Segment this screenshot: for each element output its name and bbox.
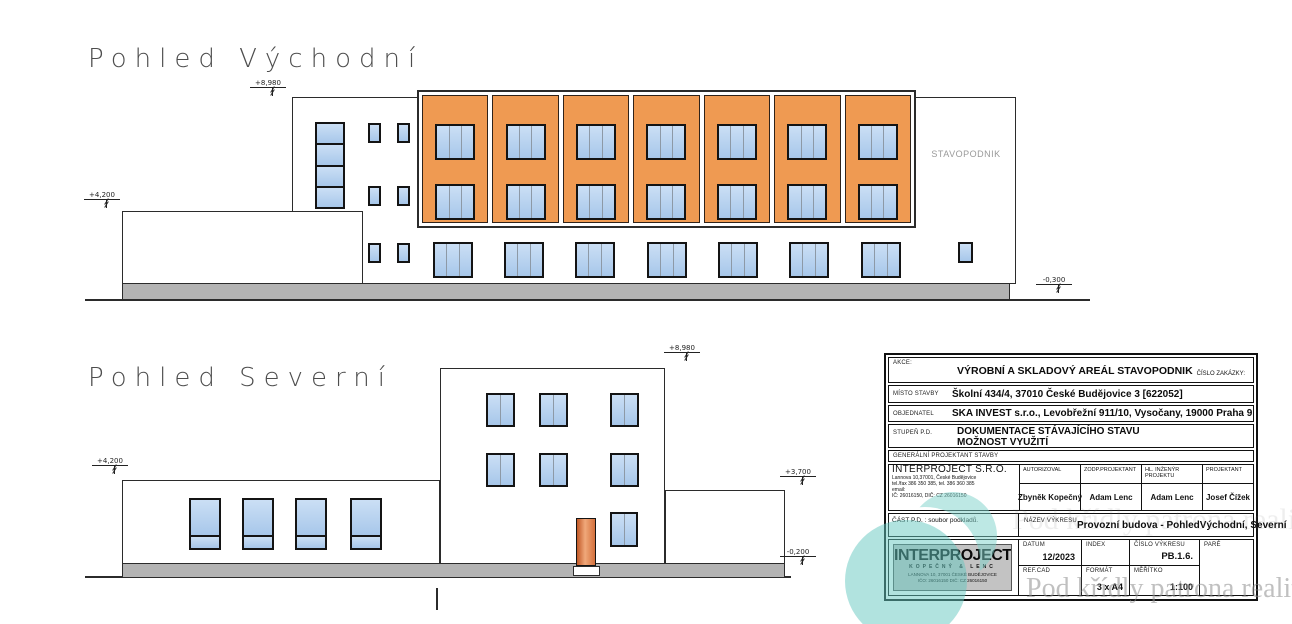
annex-window bbox=[189, 498, 221, 550]
window-pane bbox=[625, 395, 637, 425]
watermark-ghost-text: Pod křídly patrona realit bbox=[1012, 503, 1292, 537]
window-pane bbox=[541, 455, 553, 485]
window-pane bbox=[554, 395, 566, 425]
level-tick-icon bbox=[272, 88, 273, 96]
cislo-vykresu-value: PB.1.6. bbox=[1161, 551, 1193, 562]
north-upper-window bbox=[539, 393, 568, 427]
logo-address: IČO: 26016150 DIČ: CZ 26016150 bbox=[894, 578, 1011, 584]
akce-value: VÝROBNÍ A SKLADOVÝ AREÁL STAVOPODNIK bbox=[957, 365, 1193, 377]
level-marker-annex-right: +3,700 bbox=[780, 468, 816, 477]
projektant-label: PROJEKTANT bbox=[1203, 465, 1253, 484]
zodp-projektant-label: ZODP.PROJEKTANT bbox=[1081, 465, 1141, 484]
index-label: INDEX bbox=[1086, 542, 1105, 548]
firm-address-line: IČ: 26016150, DIČ: CZ 26016150 bbox=[892, 493, 1016, 499]
north-upper-window bbox=[539, 453, 568, 487]
level-marker-annex-left: +4,200 bbox=[92, 457, 128, 466]
annex-window bbox=[295, 498, 327, 550]
index-cell: INDEX bbox=[1081, 540, 1129, 566]
level-value: -0,300 bbox=[1036, 276, 1072, 285]
window-pane bbox=[554, 455, 566, 485]
stupen-pd-label: STUPEŇ P.D. bbox=[893, 430, 932, 436]
level-value: +8,980 bbox=[250, 79, 286, 88]
stupen-pd-value-2: MOŽNOST VYUŽITÍ bbox=[957, 437, 1048, 448]
level-tick-icon bbox=[802, 477, 803, 485]
gen-projektant-label: GENERÁLNÍ PROJEKTANT STAVBY bbox=[893, 453, 998, 459]
window-pane bbox=[352, 500, 380, 535]
level-tick-icon bbox=[1058, 285, 1059, 293]
title-block-row-akce: AKCE: VÝROBNÍ A SKLADOVÝ AREÁL STAVOPODN… bbox=[888, 357, 1254, 383]
window-pane bbox=[541, 395, 553, 425]
north-upper-window bbox=[610, 393, 639, 427]
firm-name: INTERPROJECT S.R.O. bbox=[892, 467, 1016, 473]
level-tick-icon bbox=[114, 466, 115, 474]
window-pane bbox=[191, 500, 219, 535]
window-pane bbox=[625, 455, 637, 485]
level-value: +8,980 bbox=[664, 344, 700, 353]
window-pane bbox=[244, 537, 272, 549]
level-value: -0,200 bbox=[780, 548, 816, 557]
datum-value: 12/2023 bbox=[1042, 552, 1075, 562]
cislo-zakazky-label: ČÍSLO ZAKÁZKY: bbox=[1197, 371, 1245, 377]
level-tick-icon bbox=[106, 200, 107, 208]
window-pane bbox=[501, 395, 513, 425]
window-pane bbox=[612, 455, 624, 485]
datum-cell: DATUM 12/2023 bbox=[1019, 540, 1081, 566]
misto-stavby-value: Školní 434/4, 37010 České Budějovice 3 [… bbox=[952, 389, 1183, 400]
level-value: +4,200 bbox=[84, 191, 120, 200]
window-pane bbox=[612, 395, 624, 425]
title-block-row-objednatel: OBJEDNATEL SKA INVEST s.r.o., Levobřežní… bbox=[888, 405, 1254, 422]
section-mark bbox=[436, 588, 438, 610]
firm-cell: INTERPROJECT S.R.O. Lannova 10,37001, Če… bbox=[889, 465, 1019, 510]
window-pane bbox=[625, 514, 637, 545]
logo-subtitle: KOPEČNÝ & LENC bbox=[894, 564, 1011, 570]
window-pane bbox=[352, 537, 380, 549]
window-pane bbox=[244, 500, 272, 535]
north-plinth bbox=[122, 563, 785, 578]
level-marker-roof: +8,980 bbox=[664, 344, 700, 353]
door-step bbox=[573, 566, 600, 576]
hl-inzenyr-label: HL. INŽENÝR PROJEKTU bbox=[1142, 465, 1202, 484]
north-upper-window bbox=[486, 393, 515, 427]
level-value: +4,200 bbox=[92, 457, 128, 466]
autorizoval-label: AUTORIZOVAL bbox=[1020, 465, 1080, 484]
title-block: AKCE: VÝROBNÍ A SKLADOVÝ AREÁL STAVOPODN… bbox=[884, 353, 1258, 601]
window-pane bbox=[488, 455, 500, 485]
cast-pd-label: ČÁST P.D. : soubor podkladů. bbox=[889, 514, 1019, 536]
window-pane bbox=[488, 395, 500, 425]
entrance-door bbox=[576, 518, 596, 566]
drawing-sheet: { "east_view": { "title": "Pohled Východ… bbox=[0, 0, 1292, 624]
title-block-row-stupen: STUPEŇ P.D. DOKUMENTACE STÁVAJÍCÍHO STAV… bbox=[888, 424, 1254, 448]
window-pane bbox=[191, 537, 219, 549]
akce-label: AKCE: bbox=[893, 360, 912, 366]
window-pane bbox=[501, 455, 513, 485]
window-pane bbox=[612, 514, 624, 545]
interproject-logo: INTERPROJECT KOPEČNÝ & LENC LANNOVA 10, … bbox=[893, 544, 1012, 591]
level-tick-icon bbox=[686, 353, 687, 361]
window-pane bbox=[297, 537, 325, 549]
north-right-annex bbox=[665, 490, 785, 564]
datum-label: DATUM bbox=[1023, 542, 1045, 548]
north-view-title: Pohled Severní bbox=[88, 363, 393, 393]
cislo-vykresu-label: ČÍSLO VÝKRESU bbox=[1134, 542, 1185, 548]
annex-window bbox=[350, 498, 382, 550]
objednatel-value: SKA INVEST s.r.o., Levobřežní 911/10, Vy… bbox=[952, 408, 1252, 419]
level-marker-annex: +4,200 bbox=[84, 191, 120, 200]
pare-label: PARÉ bbox=[1204, 542, 1221, 548]
level-marker-base: -0,300 bbox=[1036, 276, 1072, 285]
level-tick-icon bbox=[802, 557, 803, 565]
stupen-pd-value-1: DOKUMENTACE STÁVAJÍCÍHO STAVU bbox=[957, 426, 1140, 437]
title-block-row-gen-projektant: GENERÁLNÍ PROJEKTANT STAVBY bbox=[888, 450, 1254, 462]
logo-cell: INTERPROJECT KOPEČNÝ & LENC LANNOVA 10, … bbox=[889, 540, 1019, 595]
north-upper-window bbox=[486, 453, 515, 487]
level-value: +3,700 bbox=[780, 468, 816, 477]
level-marker-roof: +8,980 bbox=[250, 79, 286, 88]
level-marker-base: -0,200 bbox=[780, 548, 816, 557]
window-pane bbox=[297, 500, 325, 535]
cislo-vykresu-cell: ČÍSLO VÝKRESU PB.1.6. bbox=[1129, 540, 1199, 566]
watermark-text: Pod křídly patrona realit bbox=[1026, 573, 1292, 605]
title-block-row-misto: MÍSTO STAVBY Školní 434/4, 37010 České B… bbox=[888, 385, 1254, 403]
annex-window bbox=[242, 498, 274, 550]
north-upper-window bbox=[610, 453, 639, 487]
north-left-annex bbox=[122, 480, 440, 564]
logo-address: LANNOVA 10, 37001 ČESKÉ BUDĚJOVICE bbox=[894, 572, 1011, 578]
logo-name: INTERPROJECT bbox=[894, 548, 1011, 564]
misto-stavby-label: MÍSTO STAVBY bbox=[893, 391, 939, 397]
north-ground-window bbox=[610, 512, 638, 547]
objednatel-label: OBJEDNATEL bbox=[893, 411, 934, 417]
